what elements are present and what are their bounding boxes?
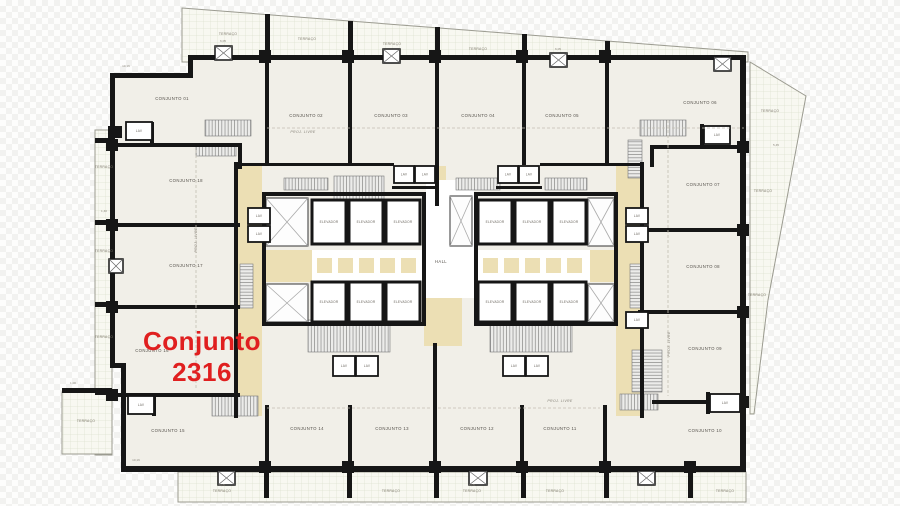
elevator-label: ELEVADOR: [394, 220, 413, 224]
room-label: CONJUNTO 11: [543, 426, 577, 431]
wall: [605, 58, 609, 165]
wall-pier: [259, 461, 271, 473]
wall: [234, 163, 394, 166]
elevator-label: ELEVADOR: [523, 220, 542, 224]
elevator-label: ELEVADOR: [560, 300, 579, 304]
wall: [540, 163, 644, 166]
proj-livre-label: PROJ. LIVRE: [290, 130, 316, 134]
highlight-label-line1: Conjunto: [128, 326, 276, 357]
room-label: CONJUNTO 05: [545, 113, 579, 118]
staircase: [632, 350, 662, 392]
wall: [422, 192, 426, 326]
room-label: CONJUNTO 13: [375, 426, 409, 431]
terrace-label: TERRAÇO: [95, 335, 113, 339]
highlight-label: Conjunto 2316: [128, 326, 276, 388]
hall-floor-square: [358, 257, 375, 274]
room-label: CONJUNTO 02: [289, 113, 323, 118]
elevator-label: ELEVADOR: [320, 220, 339, 224]
terrace-label: TERRAÇO: [463, 489, 481, 493]
elevator-label: ELEVADOR: [486, 300, 505, 304]
dimension-label: 5,45: [773, 143, 779, 147]
terrace-wall-stub: [434, 472, 439, 498]
hall-floor-square: [337, 257, 354, 274]
terrace-label: TERRAÇO: [716, 489, 734, 493]
terrace: [750, 62, 806, 414]
wall: [522, 58, 526, 165]
lav-label: LAV: [341, 364, 348, 368]
wall-pier: [599, 461, 611, 473]
terrace-label: TERRAÇO: [95, 165, 113, 169]
lav-label: LAV: [634, 214, 641, 218]
terrace-wall-stub: [95, 220, 111, 225]
dimension-label: 6,05: [220, 39, 226, 43]
terrace-wall-stub: [605, 41, 610, 58]
wall: [262, 322, 426, 326]
terrace-wall-stub: [435, 27, 440, 58]
room-label: CONJUNTO 01: [155, 96, 189, 101]
terrace-wall-stub: [108, 126, 122, 138]
terrace-label: TERRAÇO: [77, 419, 95, 423]
elevator-label: ELEVADOR: [486, 220, 505, 224]
elevator-label: ELEVADOR: [394, 300, 413, 304]
elevator-label: ELEVADOR: [357, 220, 376, 224]
wall: [112, 223, 240, 227]
wall: [640, 162, 644, 418]
room-label: CONJUNTO 15: [151, 428, 185, 433]
wall: [348, 405, 352, 468]
hall-floor-square: [503, 257, 520, 274]
hall-label: HALL: [435, 259, 447, 264]
staircase: [334, 176, 384, 200]
lav-label: LAV: [401, 173, 408, 177]
room-label: CONJUNTO 18: [169, 178, 203, 183]
proj-livre-label: PROJ. LIVRE: [547, 399, 573, 403]
hall-floor-square: [545, 257, 562, 274]
floor-plan-canvas: ELEVADORELEVADORELEVADORELEVADORELEVADOR…: [0, 0, 900, 506]
wall: [112, 305, 240, 309]
dimension-label: 1,00: [70, 381, 76, 385]
wall: [112, 143, 242, 147]
terrace-label: TERRAÇO: [382, 489, 400, 493]
terrace-label: TERRAÇO: [469, 47, 487, 51]
corridor: [266, 250, 312, 282]
staircase: [545, 178, 587, 190]
terrace-wall-stub: [521, 472, 526, 498]
lav-label: LAV: [505, 173, 512, 177]
wall-pier: [737, 306, 749, 318]
wall: [638, 228, 744, 232]
lav-label: LAV: [526, 173, 533, 177]
staircase: [205, 120, 251, 136]
terrace-label: TERRAÇO: [95, 249, 113, 253]
staircase: [240, 264, 253, 308]
lav-label: LAV: [634, 318, 641, 322]
wall: [474, 322, 618, 326]
staircase: [456, 178, 500, 190]
terrace-label: TERRAÇO: [213, 489, 231, 493]
wall: [433, 343, 437, 468]
hall-floor-square: [316, 257, 333, 274]
lav-label: LAV: [256, 214, 263, 218]
dimension-label: 1,40: [101, 209, 107, 213]
lav-label: LAV: [422, 173, 429, 177]
elevator-label: ELEVADOR: [560, 220, 579, 224]
wall-pier: [342, 461, 354, 473]
terrace-wall-stub: [62, 388, 112, 393]
terrace-label: TERRAÇO: [383, 42, 401, 46]
terrace-label: TERRAÇO: [298, 37, 316, 41]
wall: [474, 192, 618, 196]
highlight-label-line2: 2316: [128, 357, 276, 388]
room-label: CONJUNTO 17: [169, 263, 203, 268]
proj-livre-label: PROJ. LIVRE: [667, 331, 671, 357]
hall-floor-square: [400, 257, 417, 274]
dimension-label: 10,16: [122, 64, 130, 68]
wall: [348, 58, 352, 165]
lav-label: LAV: [511, 364, 518, 368]
lav-label: LAV: [534, 364, 541, 368]
lav-label: LAV: [256, 232, 263, 236]
terrace-label: TERRAÇO: [761, 109, 779, 113]
room-label: CONJUNTO 12: [460, 426, 494, 431]
wall: [474, 192, 478, 326]
lav-label: LAV: [714, 133, 721, 137]
room-label: CONJUNTO 06: [683, 100, 717, 105]
wall: [110, 73, 192, 78]
terrace-wall-stub: [265, 14, 270, 58]
terrace-label: TERRAÇO: [546, 489, 564, 493]
wall-pier: [429, 461, 441, 473]
wall: [520, 405, 524, 468]
hall-floor-square: [379, 257, 396, 274]
terrace-label: TERRAÇO: [754, 189, 772, 193]
terrace-label: TERRAÇO: [219, 32, 237, 36]
wall: [652, 145, 744, 149]
room-label: CONJUNTO 08: [686, 264, 720, 269]
terrace-wall-stub: [95, 138, 111, 143]
dimension-label: 6,05: [219, 483, 225, 487]
terrace-wall-stub: [264, 472, 269, 498]
wall-pier: [737, 224, 749, 236]
wall: [603, 405, 607, 468]
corridor: [424, 298, 462, 346]
terrace-wall-stub: [347, 472, 352, 498]
lav-label: LAV: [634, 232, 641, 236]
wall: [262, 192, 426, 196]
staircase: [628, 140, 642, 178]
room-label: CONJUNTO 14: [290, 426, 324, 431]
hall-floor-square: [482, 257, 499, 274]
dimension-label: 6,05: [555, 47, 561, 51]
room-label: CONJUNTO 07: [686, 182, 720, 187]
wall: [740, 57, 746, 472]
terrace-wall-stub: [95, 302, 111, 307]
elevator-label: ELEVADOR: [523, 300, 542, 304]
wall: [392, 186, 438, 189]
elevator-label: ELEVADOR: [357, 300, 376, 304]
staircase: [284, 178, 328, 190]
wall: [188, 55, 746, 60]
room-label: CONJUNTO 04: [461, 113, 495, 118]
wall: [188, 55, 193, 78]
corridor: [590, 250, 618, 282]
wall: [638, 310, 744, 314]
floor-plan-drawing: ELEVADORELEVADORELEVADORELEVADORELEVADOR…: [0, 0, 900, 506]
lav-label: LAV: [364, 364, 371, 368]
wall: [265, 405, 269, 468]
lav-label: LAV: [722, 401, 729, 405]
hall-floor-square: [566, 257, 583, 274]
elevator-label: ELEVADOR: [320, 300, 339, 304]
wall: [265, 58, 269, 165]
terrace-wall-stub: [604, 472, 609, 498]
terrace-wall-stub: [522, 34, 527, 58]
proj-livre-label: PROJ. LIVRE: [194, 227, 198, 253]
room-label: CONJUNTO 03: [374, 113, 408, 118]
hall-floor-square: [524, 257, 541, 274]
terrace-label: TERRAÇO: [748, 293, 766, 297]
wall-pier: [684, 461, 696, 473]
wall: [496, 186, 542, 189]
wall: [121, 363, 126, 468]
lav-label: LAV: [136, 129, 143, 133]
terrace: [62, 392, 112, 454]
room-label: CONJUNTO 10: [688, 428, 722, 433]
wall: [614, 192, 618, 326]
wall-pier: [516, 461, 528, 473]
lav-label: LAV: [138, 403, 145, 407]
terrace: [178, 472, 746, 502]
dimension-label: 10,16: [132, 458, 140, 462]
dimension-label: 6,05: [469, 483, 475, 487]
terrace-wall-stub: [348, 21, 353, 58]
terrace-wall-stub: [688, 472, 693, 498]
room-label: CONJUNTO 09: [688, 346, 722, 351]
wall-pier: [737, 141, 749, 153]
